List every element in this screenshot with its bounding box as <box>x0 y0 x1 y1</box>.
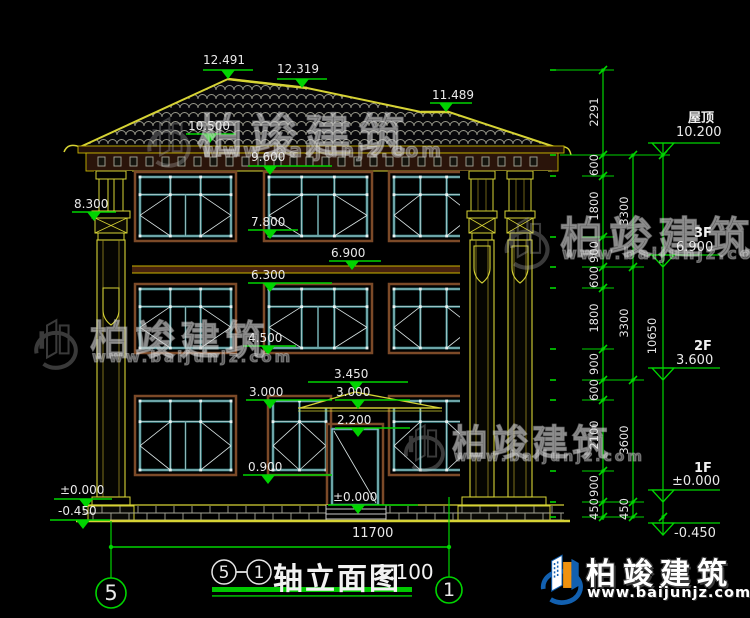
chain-dim: 3300 <box>617 196 631 225</box>
spot-elevation-label: 7.800 <box>251 216 285 229</box>
spot-elevation-label: 3.000 <box>249 386 283 399</box>
spot-elevation-label: ±0.000 <box>60 484 104 497</box>
brand-logo-icon <box>534 546 586 606</box>
chain-dim: 450 <box>617 498 631 520</box>
axis-bubble-5: 5 <box>96 581 126 605</box>
floor-elevation: 10.200 <box>676 125 722 140</box>
spot-elevation-label: 11.489 <box>432 89 474 102</box>
floor-elevation: ±0.000 <box>672 474 720 489</box>
chain-dim: 900 <box>587 475 601 497</box>
floor-elevation: -0.450 <box>674 526 716 541</box>
spot-elevation-label: 12.319 <box>277 63 319 76</box>
chain-dim: 2100 <box>587 420 601 449</box>
chain-dim: 600 <box>587 379 601 401</box>
chain-dim: 900 <box>587 241 601 263</box>
floor-label-roof: 屋顶 <box>688 107 714 126</box>
spot-elevation-label: 8.300 <box>74 198 108 211</box>
spot-elevation-label: -0.450 <box>58 505 97 518</box>
spot-elevation-label: 2.200 <box>337 414 371 427</box>
spot-elevation-label: 6.300 <box>251 269 285 282</box>
spot-elevation-label: 10.500 <box>188 120 230 133</box>
watermark-url-text: www.baijunjz.com <box>92 348 293 366</box>
chain-dim: 1800 <box>587 191 601 220</box>
chain-dim: 3300 <box>617 308 631 337</box>
chain-dim: 450 <box>587 498 601 520</box>
watermark-logo-icon <box>395 414 450 474</box>
watermark-logo-icon <box>138 106 196 170</box>
floor-elevation: 3.600 <box>676 353 713 368</box>
watermark-logo-icon <box>495 206 555 272</box>
chain-dim: 2291 <box>587 97 601 126</box>
watermark-url-text: www.baijunjz.com <box>202 140 444 162</box>
floor-elevation: 6.900 <box>676 240 713 255</box>
floor-label-3f: 3F <box>694 226 712 241</box>
spot-elevation-label: ±0.000 <box>333 491 377 504</box>
chain-dim: 10650 <box>645 318 659 355</box>
spot-elevation-label: 6.900 <box>331 247 365 260</box>
title-axis-from: 5 <box>212 563 236 583</box>
spot-elevation-label: 3.000 <box>336 386 370 399</box>
spot-elevation-label: 12.491 <box>203 54 245 67</box>
cad-elevation-screenshot: 柏竣建筑 www.baijunjz.com 柏竣建筑 www.baijunjz.… <box>0 0 750 618</box>
chain-dim: 900 <box>587 353 601 375</box>
spot-elevation-label: 0.900 <box>248 461 282 474</box>
chain-dim: 600 <box>587 154 601 176</box>
axis-bubble-1: 1 <box>434 579 464 601</box>
chain-dim: 1800 <box>587 303 601 332</box>
spot-elevation-label: 4.500 <box>248 332 282 345</box>
chain-dim: 600 <box>587 266 601 288</box>
chain-dim: 3600 <box>617 425 631 454</box>
brand-logo-url: www.baijunjz.com <box>587 585 750 601</box>
title-axis-to: 1 <box>247 563 271 583</box>
spot-elevation-label: 9.600 <box>251 151 285 164</box>
floor-label-2f: 2F <box>694 339 712 354</box>
drawing-scale: 1:100 <box>376 560 434 584</box>
spot-elevation-label: 3.450 <box>334 368 368 381</box>
bottom-dimension-label: 11700 <box>352 527 393 541</box>
watermark-logo-icon <box>22 308 86 372</box>
